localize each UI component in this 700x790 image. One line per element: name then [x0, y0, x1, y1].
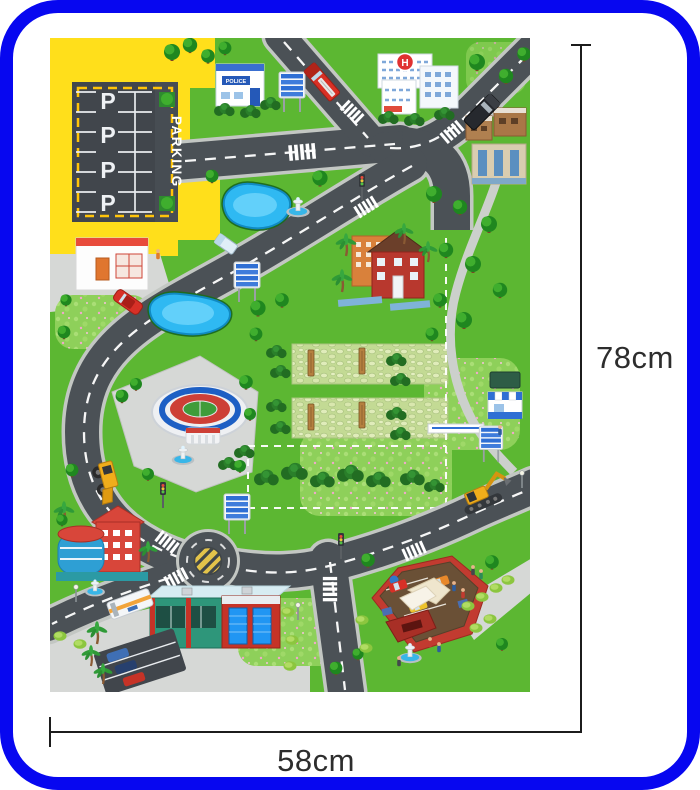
parking-lot: P P P P PARKING	[72, 82, 184, 222]
height-label: 78cm	[596, 340, 674, 376]
width-dimension-line	[50, 731, 582, 733]
product-dimension-image: P P P P PARKING	[0, 0, 700, 790]
svg-text:P: P	[100, 190, 115, 216]
hospital-logo: H	[401, 58, 408, 69]
svg-text:P: P	[100, 88, 115, 114]
dumpster	[490, 372, 520, 388]
gas-station	[76, 238, 148, 290]
police-sign: POLICE	[226, 79, 247, 85]
height-dimension-top-tick	[571, 44, 591, 46]
parking-sign: PARKING	[169, 116, 184, 188]
svg-text:P: P	[100, 122, 115, 148]
svg-text:P: P	[100, 157, 115, 183]
roundabout	[176, 529, 240, 593]
width-label: 58cm	[50, 743, 582, 779]
height-dimension-line	[580, 45, 582, 733]
playmat-illustration: P P P P PARKING	[50, 38, 530, 692]
